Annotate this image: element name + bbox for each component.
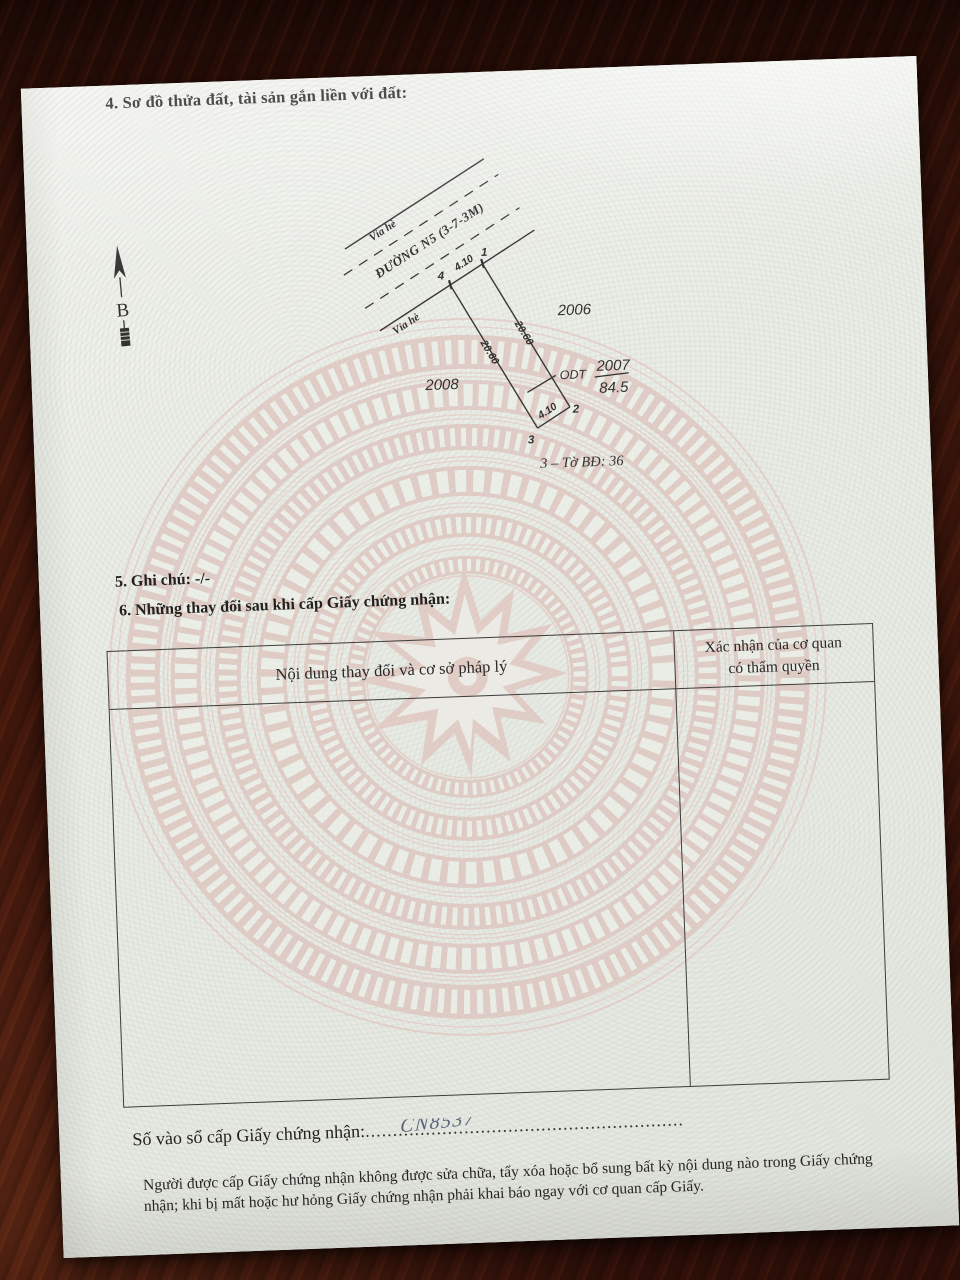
parcel-number-label: 2007 [595, 357, 631, 375]
amendments-table: Nội dung thay đổi và cơ sở pháp lý Xác n… [107, 623, 890, 1108]
neighbor-parcel-right-label: 2006 [556, 301, 592, 319]
registry-label: Số vào sổ cấp Giấy chứng nhận: [132, 1121, 365, 1150]
corner-2-label: 2 [572, 404, 580, 416]
plot-diagram: Vỉa hè ĐƯỜNG N5 (3-7-3M) Vỉa hè 4 4.10 1… [273, 124, 706, 509]
registry-number-row: . . Số vào sổ cấp Giấy chứng nhận:......… [132, 1106, 772, 1150]
corner-1-label: 1 [481, 247, 488, 259]
section5-note: 5. Ghi chú: -/- [115, 570, 211, 591]
corner-4-label: 4 [437, 270, 445, 282]
table-column-divider [673, 631, 691, 1086]
land-use-code-label: ODT [559, 367, 587, 382]
table-col2-header: Xác nhận của cơ quan có thẩm quyền [673, 624, 874, 688]
photo-scene: { "page": { "section4_title": "4. Sơ đồ … [0, 0, 960, 1280]
sidewalk-top-label: Vỉa hè [367, 218, 398, 244]
corner-3-label: 3 [528, 434, 535, 446]
north-label: B [116, 300, 131, 322]
footer-note: Người được cấp Giấy chứng nhận không đượ… [143, 1148, 874, 1217]
parcel-area-label: 84.5 [599, 379, 629, 397]
right-side-length-label: 20.60 [511, 318, 535, 348]
table-col2-header-line2: có thẩm quyền [728, 654, 820, 679]
table-col2-header-line1: Xác nhận của cơ quan [704, 632, 842, 659]
left-side-length-label: 20.60 [477, 337, 501, 367]
sidewalk-front-label: Vỉa hè [391, 311, 422, 337]
north-arrow-icon: B [87, 241, 156, 351]
map-sheet-note: 3 – Tờ BĐ: 36 [539, 453, 625, 472]
street-name-label: ĐƯỜNG N5 (3-7-3M) [371, 199, 486, 281]
section4-title: 4. Sơ đồ thửa đất, tài sản gắn liền với … [105, 83, 407, 114]
neighbor-parcel-left-label: 2008 [424, 376, 460, 394]
rear-length-label: 4.10 [535, 400, 560, 422]
certificate-page: 4. Sơ đồ thửa đất, tài sản gắn liền với … [21, 56, 959, 1258]
